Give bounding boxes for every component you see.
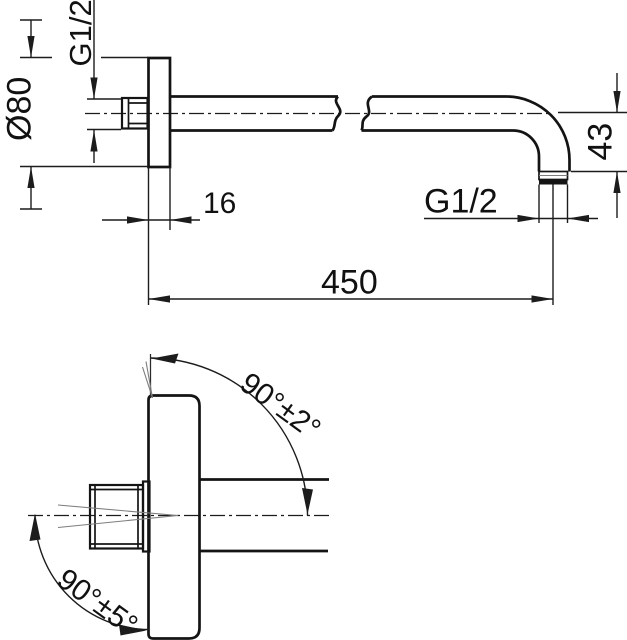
arrowhead — [30, 514, 41, 542]
label-outlet-drop: 43 — [582, 123, 620, 161]
front-flange-outline — [149, 396, 200, 639]
dim-outlet-thread: G1/2 — [424, 183, 598, 224]
dim-flange-depth: 16 — [102, 167, 236, 305]
side-view: G1/2 Ø80 16 — [1, 0, 627, 305]
label-angle-top: 90°±2° — [234, 366, 327, 446]
bend-inner-curve — [513, 131, 539, 172]
label-arm-length: 450 — [321, 264, 378, 302]
wall-flange-outline — [149, 58, 171, 167]
dim-flange-thread: G1/2 — [63, 0, 121, 163]
label-angle-bottom: 90°±5° — [51, 562, 144, 640]
front-nut-collar — [143, 482, 150, 552]
technical-drawing-canvas: G1/2 Ø80 16 — [0, 0, 627, 640]
front-view: 90°±2° 90°±5° — [28, 354, 333, 640]
arrowhead — [90, 130, 97, 152]
dim-angle-top: 90°±2° — [151, 354, 327, 516]
label-flange-thread: G1/2 — [63, 0, 98, 67]
arrowhead — [532, 295, 554, 302]
arrowhead — [613, 91, 620, 113]
label-outlet-thread: G1/2 — [424, 183, 498, 221]
arrowhead — [149, 295, 171, 302]
arrowhead — [613, 172, 620, 194]
label-flange-diameter: Ø80 — [1, 77, 39, 141]
arrowhead — [127, 216, 149, 223]
tolerance-fan-left-1 — [58, 505, 178, 516]
arrowhead — [568, 215, 590, 222]
outlet-end-cap — [539, 180, 568, 185]
arrowhead — [170, 216, 192, 223]
arrowhead — [90, 78, 97, 100]
shower-arm-drawing: G1/2 Ø80 16 — [0, 0, 627, 640]
dim-outlet-drop: 43 — [571, 73, 627, 218]
arrowhead — [27, 36, 34, 58]
tolerance-fan-left-2 — [58, 516, 178, 528]
arrowhead — [302, 488, 313, 515]
label-flange-depth: 16 — [203, 187, 236, 220]
angle-arc-top — [151, 358, 308, 516]
arrowhead — [152, 354, 179, 364]
arrowhead — [518, 215, 540, 222]
front-nut-outline — [90, 485, 143, 549]
